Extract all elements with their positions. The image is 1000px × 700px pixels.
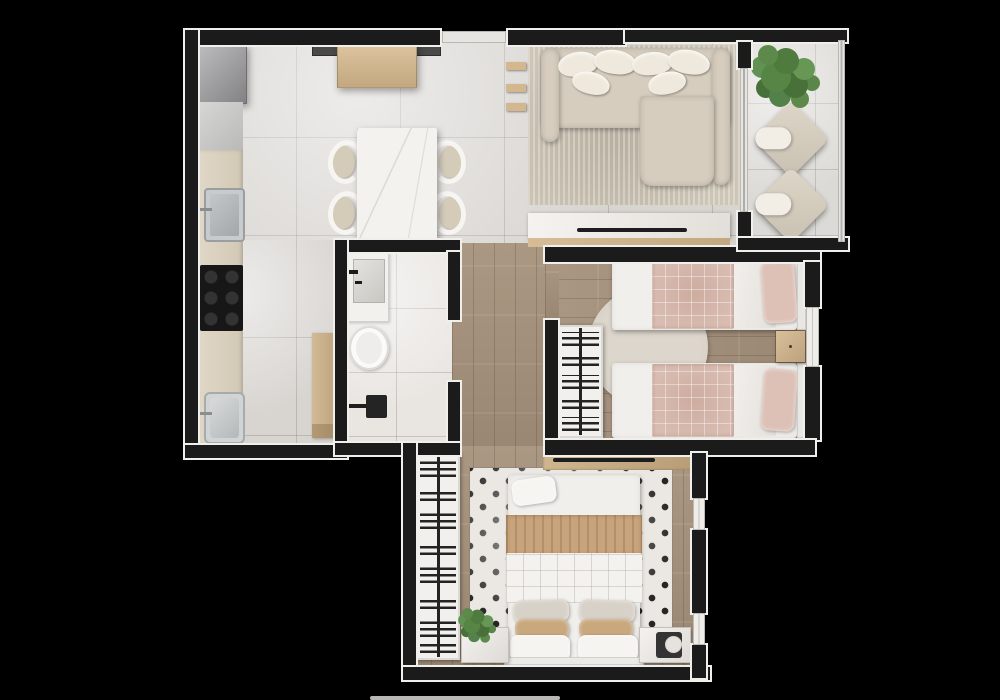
wall-twin-bottom (545, 440, 815, 455)
master-window (693, 613, 705, 645)
wall-master-left (403, 443, 416, 680)
master-nightstand-right (640, 628, 690, 662)
hanging-clothes-icon (562, 355, 599, 366)
wall-balcony-bottom (738, 238, 848, 250)
wall-bathroom-right-upper (448, 252, 460, 320)
balcony-glass-railing (838, 40, 845, 242)
balcony-plant (758, 45, 778, 65)
twin-bed-quilt (652, 364, 734, 437)
master-bed-duvet (506, 553, 642, 603)
wall-master-right-a (692, 453, 706, 498)
wall-shelf (506, 103, 526, 111)
wall-top-left (185, 30, 440, 45)
nightstand-knob-icon (789, 345, 792, 348)
dining-table (357, 128, 437, 240)
laundry-sink-basin (210, 398, 239, 438)
wall-kitchen-bottom (185, 445, 347, 458)
hanging-clothes-icon (562, 417, 599, 431)
wall-balcony-partition-top (738, 42, 751, 68)
hanging-clothes-icon (420, 513, 456, 529)
wall-bathroom-left (335, 240, 347, 455)
kitchen-base-cabinet (198, 102, 243, 150)
hallway-floor (452, 243, 547, 463)
master-nightstand-left (462, 628, 508, 662)
master-tv-panel (543, 453, 693, 470)
twin-bed-quilt (652, 256, 734, 329)
hanging-clothes-icon (562, 332, 599, 346)
wall-bathroom-bottom (335, 443, 460, 455)
tv-console-wood-base (528, 238, 730, 247)
wall-niche-right (415, 44, 441, 56)
hanging-clothes-icon (562, 398, 599, 409)
floor-plan (0, 0, 1000, 700)
tall-wood-cabinet (312, 333, 334, 438)
toilet-seat (356, 332, 382, 364)
balcony-sliding-door (740, 68, 748, 212)
nightstand-plant (462, 608, 473, 619)
wall-twin-left (545, 320, 558, 444)
wall-niche-left (312, 44, 338, 56)
dining-chair (436, 139, 466, 185)
laundry-sink (204, 392, 245, 444)
cropped-scale-bar (370, 696, 560, 700)
chair-cushion (755, 193, 791, 215)
sofa-right-armrest (712, 48, 730, 185)
shower-head-icon (366, 395, 387, 418)
wall-shelf (506, 62, 526, 70)
chair-cushion (755, 127, 791, 149)
wall-top-balcony (625, 30, 847, 42)
sofa-left-armrest (541, 48, 559, 142)
wall-master-right-b (692, 530, 706, 613)
hanging-clothes-icon (420, 489, 456, 501)
dining-chair (328, 190, 358, 236)
hanging-clothes-icon (420, 597, 456, 609)
speaker-icon (656, 632, 682, 658)
sofa-chaise (640, 96, 714, 186)
twin-nightstand (776, 331, 805, 362)
refrigerator (198, 45, 247, 104)
tv-console (528, 213, 730, 238)
twin-window (806, 307, 819, 367)
wall-master-bottom (403, 667, 710, 680)
speaker-cone-icon (665, 636, 682, 653)
wall-bathroom-right-lower (448, 382, 460, 445)
entry-opening (442, 31, 506, 43)
kitchen-faucet-icon (198, 208, 212, 211)
vanity-accessory-icon (355, 281, 362, 284)
bathroom-vanity (347, 252, 389, 322)
wall-bathroom-top (335, 240, 460, 252)
dining-chair (328, 139, 358, 185)
wall-twin-right-upper (805, 262, 820, 307)
hanging-clothes-icon (562, 375, 599, 389)
twin-bed-pillow (760, 260, 798, 324)
laundry-faucet-icon (198, 412, 212, 415)
twin-wardrobe (558, 325, 603, 438)
wall-shelf (506, 84, 526, 92)
wall-twin-right-lower (805, 367, 820, 440)
hanging-clothes-icon (420, 543, 456, 555)
master-wardrobe (416, 453, 460, 660)
kitchen-sink (204, 188, 245, 242)
hanging-clothes-icon (420, 461, 456, 477)
wall-top-middle (508, 30, 625, 45)
vanity-faucet-icon (349, 270, 358, 274)
hanging-clothes-icon (420, 643, 456, 653)
cooktop (200, 265, 243, 331)
master-headboard (504, 657, 644, 665)
toilet (349, 326, 389, 370)
sideboard (337, 44, 417, 88)
dining-chair (436, 190, 466, 236)
tv-icon (577, 228, 687, 232)
kitchen-sink-basin (210, 194, 239, 236)
hanging-clothes-icon (420, 567, 456, 583)
twin-bed-pillow (760, 368, 798, 432)
tv-icon (553, 458, 655, 462)
hanging-clothes-icon (420, 621, 456, 637)
wall-left (185, 30, 198, 458)
twin-bedroom-door-threshold (545, 258, 559, 322)
wall-master-right-c (692, 645, 706, 678)
master-bed-tan-blanket (506, 515, 642, 555)
master-window (693, 498, 705, 530)
